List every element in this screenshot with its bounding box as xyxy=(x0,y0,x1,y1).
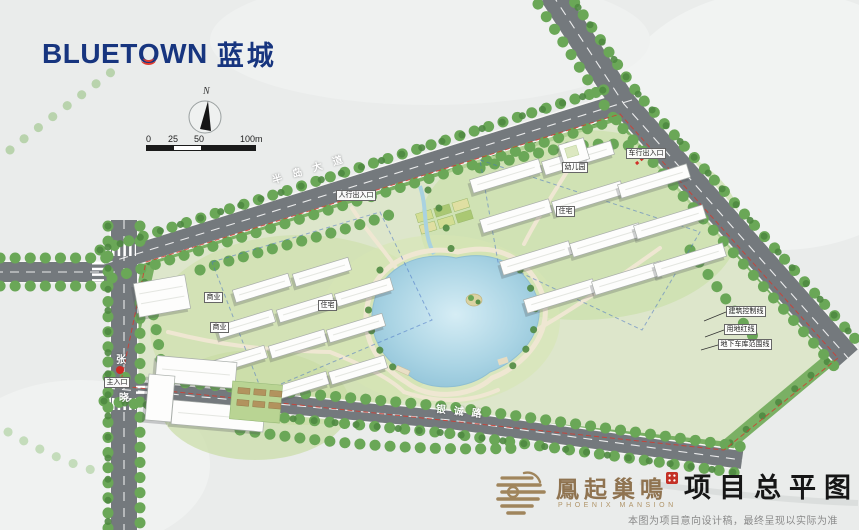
bluetown-logo: BLUETOWN 蓝城 xyxy=(42,34,277,73)
label-commercial-a: 商业 xyxy=(204,292,223,303)
scale-tick: 100m xyxy=(240,134,263,144)
label-entrance-west: 主入口 xyxy=(104,377,130,388)
project-name-en: PHOENIX MANSION xyxy=(558,502,677,509)
disclaimer-text: 本图为项目意向设计稿，最终呈现以实际为准 xyxy=(628,512,838,527)
logo-cjk: 蓝城 xyxy=(217,34,277,73)
label-kindergarten: 幼儿园 xyxy=(562,162,588,173)
label-residential-a: 住宅 xyxy=(318,300,337,311)
project-name: 鳳起巢鳴 xyxy=(556,470,668,504)
scale-tick: 0 xyxy=(146,134,151,144)
label-commercial-b: 商业 xyxy=(210,322,229,333)
master-plan-page: 半岛大道 银诚路 张 晓 商业 商业 住宅 住宅 幼儿园 人行出入口 车行出入口… xyxy=(0,0,859,530)
master-plan-map xyxy=(0,0,859,530)
callout-land-red-line: 用地红线 xyxy=(724,324,757,335)
lake-island xyxy=(466,294,482,306)
scale-tick: 50 xyxy=(194,134,204,144)
drawing-title: 项目总平图 xyxy=(684,466,859,505)
seal-icon xyxy=(666,472,678,484)
label-entrance-north: 人行出入口 xyxy=(336,190,376,201)
west-entrance-marker xyxy=(116,366,124,374)
scale-bar: 0 25 50 100m xyxy=(146,134,262,151)
label-entrance-northeast: 车行出入口 xyxy=(626,148,666,159)
phoenix-logo-icon xyxy=(494,466,548,520)
compass-north-label: N xyxy=(202,86,211,97)
label-residential-b: 住宅 xyxy=(556,206,575,217)
road-label-left-1: 张 xyxy=(116,351,126,366)
logo-text: BLUET xyxy=(42,38,138,70)
garden-courtyard xyxy=(229,381,282,423)
logo-o-wave-icon: O xyxy=(138,38,160,70)
scale-bar-segments xyxy=(146,145,256,151)
road-label-left-2: 晓 xyxy=(119,389,129,404)
scale-tick: 25 xyxy=(168,134,178,144)
callout-garage-outline: 地下车库范围线 xyxy=(718,339,772,350)
callout-building-control-line: 建筑控制线 xyxy=(726,306,766,317)
